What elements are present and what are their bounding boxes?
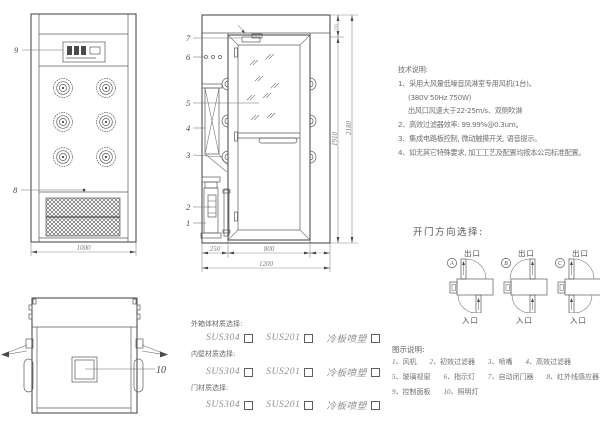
- return-grille: [46, 198, 120, 236]
- checkbox-inner-coldplate[interactable]: [371, 368, 380, 377]
- svg-text:1200: 1200: [259, 260, 274, 268]
- legend-item: 9、控制面板: [392, 385, 431, 400]
- front-view: 9 8 1000: [13, 14, 136, 256]
- legend-item: 8、红外线感应器: [547, 370, 600, 385]
- svg-text:250: 250: [210, 245, 221, 253]
- checkbox-inner-sus304[interactable]: [244, 368, 253, 377]
- material-section-title-door: 门材质选择:: [191, 383, 228, 393]
- legend-item: 2、初效过滤器: [430, 355, 476, 370]
- part-label-8: 8: [13, 185, 18, 195]
- tech-note-line: 1、采用大风量低噪音风淋室专用风机(1台)。: [398, 77, 585, 91]
- svg-text:A: A: [449, 261, 454, 267]
- svg-text:270: 270: [335, 24, 340, 32]
- material-option: 冷板喷塑: [326, 365, 366, 379]
- svg-text:2180: 2180: [345, 121, 353, 136]
- air-shower-drawing-sheet: 9 8 1000: [0, 0, 600, 431]
- material-option: SUS304: [206, 333, 240, 343]
- checkbox-outer-sus201[interactable]: [304, 334, 313, 343]
- svg-text:1000: 1000: [77, 244, 92, 252]
- control-panel: [63, 42, 105, 62]
- checkbox-inner-sus201[interactable]: [304, 368, 313, 377]
- legend: 图示说明: 1、风机 2、初效过滤器 3、喷嘴 4、高效过滤器 5、玻璃视窗 6…: [392, 344, 600, 400]
- infrared-sensor-dot: [83, 189, 86, 192]
- door-option-c[interactable]: 出口 C 入口: [555, 248, 600, 326]
- tech-note-line: 2、高效过滤器效率: 99.99%@0.3um。: [398, 118, 585, 132]
- svg-text:6: 6: [186, 52, 191, 62]
- indicator-lights: [205, 56, 222, 59]
- door-option-c-diagram: C: [555, 257, 600, 313]
- part-labels: 7 6 5 4 3 2 1: [185, 33, 259, 228]
- material-option: SUS201: [266, 400, 300, 410]
- door-handle: [259, 138, 297, 143]
- door: [228, 35, 310, 240]
- material-option: SUS304: [206, 367, 240, 377]
- door-closer: [238, 25, 262, 42]
- svg-text:B: B: [504, 261, 508, 267]
- dim-right: 270 1910 2180: [330, 15, 358, 243]
- svg-text:4: 4: [186, 123, 191, 133]
- legend-row: 5、玻璃视窗 6、指示灯 7、自动闭门器 8、红外线感应器: [392, 370, 600, 385]
- checkbox-door-sus304[interactable]: [244, 401, 253, 410]
- material-row-outer: SUS304 SUS201 冷板喷塑: [206, 331, 380, 345]
- ceiling-light: [72, 357, 97, 382]
- material-section-title-inner: 内壁材质选择:: [191, 349, 235, 359]
- side-nozzles: [222, 78, 316, 163]
- nozzles: [54, 79, 116, 167]
- legend-item: 6、指示灯: [444, 370, 476, 385]
- primary-filter: [202, 84, 227, 172]
- dim-front-width: 1000: [31, 242, 136, 256]
- svg-text:3: 3: [185, 150, 190, 160]
- svg-text:800: 800: [264, 245, 275, 253]
- material-option: SUS201: [266, 367, 300, 377]
- entry-label: 入口: [516, 315, 533, 326]
- legend-row: 9、控制面板 10、照明灯: [392, 385, 600, 400]
- checkbox-outer-sus304[interactable]: [244, 334, 253, 343]
- tech-notes: 技术说明: 1、采用大风量低噪音风淋室专用风机(1台)。 (380V 50Hz …: [398, 63, 585, 160]
- entry-label: 入口: [462, 315, 479, 326]
- glass-hatch: [247, 54, 279, 120]
- legend-item: 10、照明灯: [444, 385, 479, 400]
- svg-text:2: 2: [186, 202, 191, 212]
- tech-note-line: 3、集成电路板控制, 微动触摸开关, 语音提示。: [398, 132, 585, 146]
- svg-text:7: 7: [186, 33, 191, 43]
- part-label-9: 9: [14, 45, 19, 55]
- legend-item: 7、自动闭门器: [488, 370, 534, 385]
- door-direction-title: 开门方向选择:: [413, 224, 484, 238]
- legend-row: 1、风机 2、初效过滤器 3、喷嘴 4、高效过滤器: [392, 355, 600, 370]
- door-elevation-view: 7 6 5 4 3 2 1 25: [185, 15, 358, 272]
- legend-item: 3、喷嘴: [488, 355, 513, 370]
- door-option-a[interactable]: 出口 A 入口: [447, 248, 495, 326]
- material-section-title-outer: 外箱体材质选择:: [191, 319, 242, 329]
- dim-bottom: 250 800 1200: [202, 240, 330, 272]
- entry-label: 入口: [570, 315, 587, 326]
- material-option: 冷板喷塑: [326, 398, 366, 412]
- legend-item: 4、高效过滤器: [526, 355, 572, 370]
- part-label-10: 10: [156, 365, 166, 376]
- door-option-a-diagram: A: [447, 257, 495, 313]
- material-option: SUS304: [206, 400, 240, 410]
- material-option: 冷板喷塑: [326, 331, 366, 345]
- material-option: SUS201: [266, 333, 300, 343]
- checkbox-outer-coldplate[interactable]: [371, 334, 380, 343]
- svg-text:C: C: [558, 261, 563, 267]
- plan-view: 10: [1, 298, 168, 413]
- legend-title: 图示说明:: [392, 344, 600, 355]
- fan-unit: [201, 177, 230, 238]
- svg-text:5: 5: [186, 98, 190, 108]
- legend-item: 1、风机: [392, 355, 417, 370]
- checkbox-door-coldplate[interactable]: [371, 401, 380, 410]
- svg-text:1910: 1910: [331, 132, 339, 147]
- material-row-inner: SUS304 SUS201 冷板喷塑: [206, 365, 380, 379]
- legend-item: 5、玻璃视窗: [392, 370, 431, 385]
- tech-note-line: 出风口风速大于22-25m/s、双侧吹淋: [398, 104, 585, 118]
- checkbox-door-sus201[interactable]: [304, 401, 313, 410]
- material-row-door: SUS304 SUS201 冷板喷塑: [206, 398, 380, 412]
- tech-notes-title: 技术说明:: [398, 63, 585, 77]
- right-door-handle: [134, 359, 143, 392]
- svg-text:1: 1: [186, 218, 190, 228]
- tech-note-line: 4、如无其它特殊要求, 加工工艺及配置均按本公司标准配置。: [398, 146, 585, 160]
- door-option-b[interactable]: 出口 B 入口: [501, 248, 549, 326]
- tech-note-line: (380V 50Hz 750W): [398, 91, 585, 105]
- door-option-b-diagram: B: [501, 257, 549, 313]
- door-swing-arrows: [1, 339, 168, 357]
